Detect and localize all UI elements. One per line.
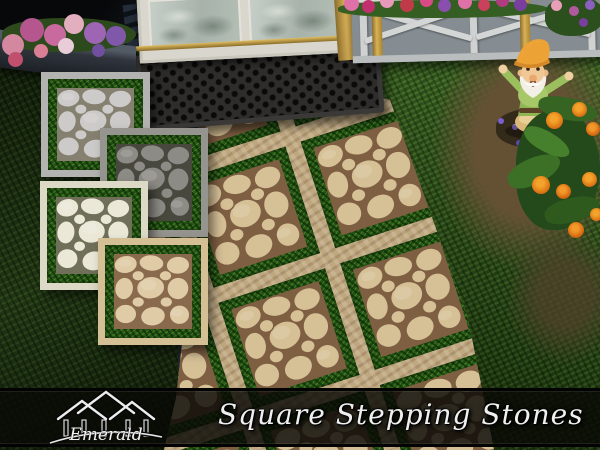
cc-title: Square Stepping Stones [218,398,528,431]
swatch-tan-stepping-stone[interactable] [98,238,208,345]
emerald-triple-house-logo: Emerald [44,387,168,449]
title-banner: Emerald Square Stepping Stones [0,388,600,447]
corner-foliage [545,0,600,38]
game-screenshot: Emerald Square Stepping Stones [0,0,600,450]
creator-name: Emerald [68,425,142,445]
marigold-bush [498,88,600,248]
glass-door [136,0,353,64]
planter-rose-flowers [338,0,548,20]
